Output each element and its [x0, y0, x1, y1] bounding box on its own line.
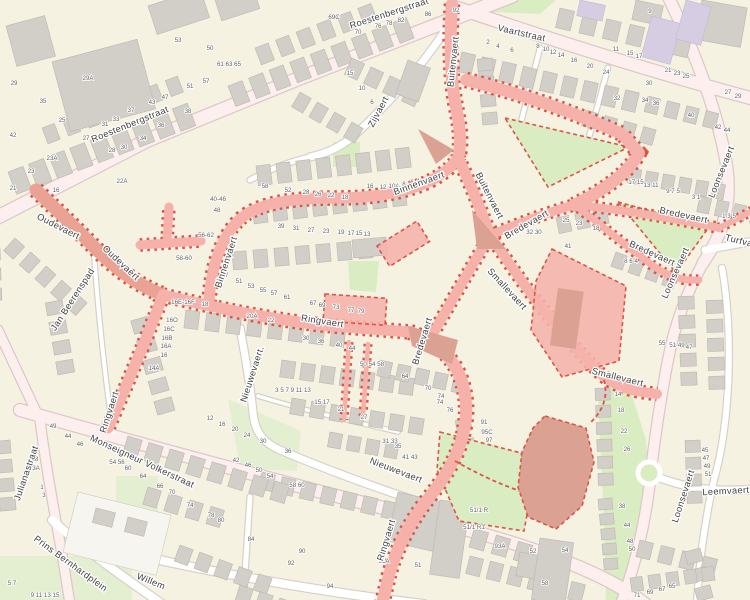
house-number: 22A: [116, 178, 128, 185]
house-number: 50: [629, 546, 636, 553]
house-number: 80: [218, 517, 225, 524]
house-number: 20A: [246, 313, 258, 320]
house-number: 40: [688, 112, 695, 119]
house-number: 14: [558, 52, 565, 59]
building: [477, 58, 493, 71]
house-number: 70: [169, 489, 176, 496]
building: [253, 249, 269, 268]
house-number: 26: [315, 191, 322, 198]
house-number: 16C: [163, 326, 175, 333]
building: [686, 457, 701, 470]
house-number: 36: [653, 100, 660, 107]
building: [375, 150, 391, 172]
house-number: 52: [530, 548, 537, 555]
house-number: 16: [367, 183, 374, 190]
house-number: 90: [299, 548, 306, 555]
building: [365, 439, 380, 456]
house-number: 49: [704, 463, 711, 470]
house-number: 23: [576, 220, 583, 227]
house-number: 32 30: [526, 229, 542, 236]
house-number: 91: [481, 419, 488, 426]
building: [602, 543, 617, 555]
house-number: 34: [140, 135, 147, 142]
house-number: 49: [50, 423, 57, 430]
building: [388, 414, 404, 432]
building: [706, 300, 722, 314]
house-number: 46: [77, 441, 84, 448]
house-number: 29: [11, 80, 18, 87]
house-number: 36: [318, 338, 325, 345]
house-number: 77: [348, 307, 355, 314]
building: [683, 569, 697, 585]
house-number: 11: [613, 46, 620, 53]
house-number: 70: [355, 29, 362, 36]
house-number: 73: [333, 304, 340, 311]
house-number: 39: [278, 223, 285, 230]
house-number: 30: [121, 144, 128, 151]
house-number: 47: [703, 455, 710, 462]
house-number: 1: [40, 484, 44, 491]
house-number: 24: [603, 69, 610, 76]
house-number: 28: [109, 147, 116, 154]
building: [0, 478, 14, 492]
house-number: 32: [614, 95, 621, 102]
house-number: 51: [705, 471, 712, 478]
building: [598, 473, 613, 486]
house-number: 54: [267, 473, 274, 480]
house-number: 50: [207, 45, 214, 52]
house-number: 29A: [82, 75, 94, 82]
house-number: 58: [542, 580, 549, 587]
house-number: 42: [715, 124, 722, 131]
house-number: 76: [375, 23, 382, 30]
map-canvas[interactable]: 2935254223A232129A2731333743475157535061…: [0, 0, 750, 600]
house-number: 50: [256, 467, 263, 474]
building: [56, 359, 75, 375]
building: [327, 432, 342, 449]
house-number: 20: [232, 426, 239, 433]
house-number: 12: [380, 184, 387, 191]
house-number: 86: [425, 11, 432, 18]
house-number: 33: [113, 116, 120, 123]
house-number: 21: [10, 185, 17, 192]
house-number: 27: [308, 227, 315, 234]
house-number: 3 1: [692, 194, 701, 201]
house-number: 38: [185, 108, 192, 115]
house-number: 14: [615, 391, 622, 398]
house-number: 2: [486, 39, 490, 46]
house-number: 74: [187, 502, 194, 509]
building: [709, 376, 725, 390]
building: [0, 440, 11, 454]
building: [0, 288, 2, 301]
house-number: 16B: [161, 335, 172, 342]
house-number: 23: [28, 168, 35, 175]
house-number: 17 15: [628, 179, 644, 186]
house-number: 55: [260, 287, 267, 294]
house-number: 67: [659, 586, 666, 593]
building: [0, 459, 13, 473]
house-number: 66: [157, 483, 164, 490]
building: [0, 268, 1, 281]
building: [601, 528, 616, 540]
building: [598, 498, 613, 510]
building: [603, 558, 618, 570]
house-number: 54: [562, 547, 569, 554]
house-number: 25: [59, 117, 66, 124]
house-number: 27: [725, 89, 732, 96]
house-number: 41 43: [402, 454, 418, 461]
house-number: 38: [619, 503, 626, 510]
building: [395, 147, 411, 169]
house-number: 69: [319, 302, 326, 309]
building: [679, 315, 695, 329]
house-number: 25: [563, 217, 570, 224]
house-number: 6: [370, 99, 374, 106]
house-number: 42: [233, 457, 240, 464]
house-number: 19: [338, 229, 345, 236]
house-number: 48: [627, 538, 634, 545]
building: [299, 363, 315, 382]
house-number: 58 60: [289, 482, 305, 489]
house-number: 17: [636, 53, 643, 60]
house-number: 15: [356, 230, 363, 237]
house-number: 78: [386, 20, 393, 27]
house-number: 34: [642, 97, 649, 104]
house-number: 28: [303, 189, 310, 196]
building: [355, 152, 371, 174]
house-number: 51: [415, 562, 422, 569]
building: [295, 245, 311, 264]
house-number: 92: [453, 7, 460, 14]
house-number: 70: [425, 385, 432, 392]
house-number: 22: [621, 428, 628, 435]
house-number: 14A: [148, 365, 160, 372]
building: [52, 339, 71, 355]
house-number: 40: [336, 342, 343, 349]
house-number: 18: [618, 407, 625, 414]
house-number: 35: [40, 98, 47, 105]
house-number: 18: [593, 225, 600, 232]
house-number: 44: [724, 127, 731, 134]
building: [289, 398, 305, 416]
house-number: 45: [702, 447, 709, 454]
house-number: 15 17: [314, 399, 330, 406]
house-number: 78: [208, 512, 215, 519]
house-number: 61 63 65: [217, 61, 242, 68]
house-number: 57: [271, 290, 278, 297]
house-number: 16: [219, 421, 226, 428]
house-number: 71: [634, 592, 641, 599]
building: [184, 310, 200, 330]
house-number: 95C: [481, 429, 493, 436]
map-viewport[interactable]: 2935254223A232129A2731333743475157535061…: [0, 0, 750, 600]
house-number: 12: [207, 415, 214, 422]
house-number: 6: [510, 47, 514, 54]
house-number: 82: [398, 17, 405, 24]
house-number: 20: [587, 63, 594, 70]
house-number: 8 6 4: [624, 258, 638, 265]
house-number: 60: [125, 465, 132, 472]
house-number: 16: [571, 57, 578, 64]
house-number: 46: [245, 462, 252, 469]
house-number: 84: [248, 536, 255, 543]
house-number: 27: [361, 414, 368, 421]
house-number: 64: [402, 373, 409, 380]
house-number: 31: [293, 225, 300, 232]
house-number: 15: [627, 50, 634, 57]
building: [597, 456, 612, 469]
house-number: 21: [665, 67, 672, 74]
house-number: 44: [349, 345, 356, 352]
building: [597, 439, 612, 452]
house-number: 74: [437, 399, 444, 406]
house-number: 18: [342, 194, 349, 201]
house-number: 51 49: [669, 342, 685, 349]
house-number: 48: [214, 207, 221, 214]
house-number: 3 5 7 9 11 13: [275, 387, 311, 394]
house-number: 4: [496, 43, 500, 50]
building: [596, 422, 611, 435]
building: [630, 576, 644, 592]
house-number: 55: [659, 340, 666, 347]
house-number: 22: [328, 192, 335, 199]
house-number: 51: [187, 83, 194, 90]
building: [707, 319, 723, 333]
building: [369, 411, 385, 429]
highlighted-road: [167, 207, 169, 241]
house-number: 67: [310, 300, 317, 307]
house-number: 8: [536, 43, 540, 50]
building: [337, 242, 353, 261]
building: [280, 360, 296, 379]
house-number: 12: [550, 49, 557, 56]
house-number: 58-60: [176, 255, 192, 262]
house-number: 13: [364, 231, 371, 238]
building: [701, 566, 715, 582]
building: [232, 251, 248, 270]
house-number: 25: [683, 73, 690, 80]
house-number: 9: [648, 8, 652, 15]
house-number: 3: [42, 492, 46, 499]
house-number: 30: [646, 80, 653, 87]
house-number: 44: [624, 522, 631, 529]
house-number: 69: [647, 589, 654, 596]
house-number: 53: [248, 283, 255, 290]
house-number: 13 11: [643, 182, 659, 189]
building: [681, 372, 697, 386]
house-number: 16E-16F: [171, 299, 195, 306]
building: [678, 296, 694, 310]
house-number: 24: [244, 432, 251, 439]
building: [346, 435, 361, 452]
building: [595, 388, 610, 401]
house-number: 5 7: [8, 580, 17, 587]
house-number: 52: [285, 187, 292, 194]
house-number: 17: [348, 230, 355, 237]
house-number: 37: [128, 107, 135, 114]
house-number: 51/1 R1: [463, 524, 485, 531]
house-number: 21: [338, 406, 345, 413]
house-number: 43: [149, 99, 156, 106]
building: [316, 243, 332, 262]
house-number: 61: [284, 294, 291, 301]
house-number: 40-46: [210, 196, 226, 203]
house-number: 22: [268, 317, 275, 324]
building: [296, 159, 312, 181]
building: [708, 357, 724, 371]
building: [707, 338, 723, 352]
house-number: 35: [395, 443, 402, 450]
house-number: 18: [202, 301, 209, 308]
house-number: 9 11 13 15: [31, 592, 60, 599]
house-number: 97: [486, 437, 493, 444]
house-number: 27: [83, 135, 90, 142]
house-number: 41: [565, 243, 572, 250]
house-number: 54 56: [109, 459, 125, 466]
building: [274, 247, 290, 266]
house-number: 44: [65, 433, 72, 440]
house-number: 23: [323, 228, 330, 235]
building: [599, 513, 614, 525]
house-number: 64: [140, 473, 147, 480]
building: [482, 112, 498, 125]
building: [319, 366, 335, 385]
house-number: 16: [161, 352, 168, 359]
building: [685, 440, 700, 453]
house-number: 26: [624, 446, 631, 453]
house-number: 23: [674, 70, 681, 77]
house-number: 47: [162, 94, 169, 101]
house-number: 30: [303, 335, 310, 342]
house-number: 57: [203, 78, 210, 85]
building: [408, 417, 424, 435]
house-number: 16: [53, 187, 60, 194]
house-number: 69C: [328, 14, 340, 21]
house-number: 15: [347, 70, 354, 77]
house-number: 58: [262, 183, 269, 190]
house-number: 76: [447, 407, 454, 414]
house-number: 16O: [166, 317, 178, 324]
house-number: 79: [358, 308, 365, 315]
house-number: 36: [285, 448, 292, 455]
green-area: [348, 261, 379, 292]
house-number: 10: [359, 85, 366, 92]
house-number: 36: [158, 122, 165, 129]
house-number: 93A: [494, 543, 506, 550]
building: [480, 94, 496, 107]
house-number: 30: [260, 438, 267, 445]
house-number: 56-62: [198, 232, 214, 239]
building: [680, 353, 696, 367]
house-number: 42: [10, 132, 17, 139]
house-number: 51: [236, 278, 243, 285]
house-number: 29: [735, 93, 742, 100]
building: [335, 155, 351, 177]
house-number: 92: [288, 560, 295, 567]
house-number: 9 7 5: [666, 188, 680, 195]
roundabout: [638, 462, 660, 484]
house-number: 23A: [46, 155, 58, 162]
building: [596, 405, 611, 418]
house-number: 65: [669, 583, 676, 590]
house-number: 94: [327, 583, 334, 590]
house-number: 53: [175, 37, 182, 44]
house-number: 50 54 58: [360, 361, 385, 368]
building: [276, 162, 292, 184]
house-number: 47: [686, 344, 693, 351]
house-number: 51/1 R: [470, 507, 489, 514]
house-number: 16A: [160, 343, 172, 350]
house-number: 1 3 5: [722, 213, 736, 220]
building: [316, 157, 332, 179]
